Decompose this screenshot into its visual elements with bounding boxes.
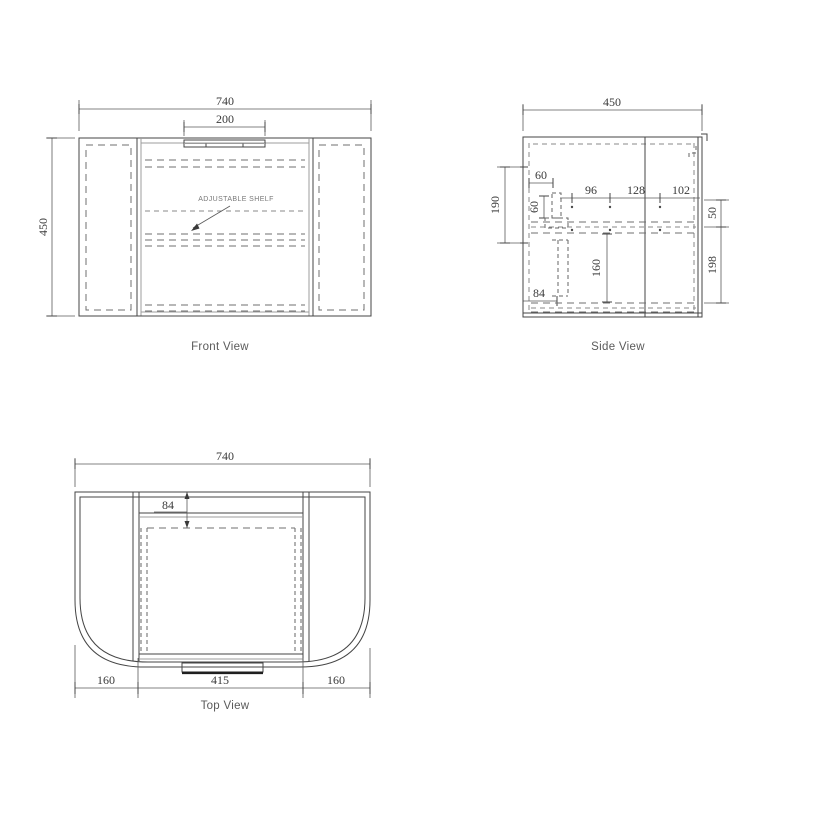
side-cabinet-outline xyxy=(520,134,707,317)
side-rail-size-value: 60 xyxy=(527,201,541,213)
top-dim-overall-width: 740 xyxy=(75,449,370,487)
side-dim-drawer-depth: 160 xyxy=(589,234,612,302)
top-right-wing-value: 160 xyxy=(327,673,345,687)
front-dim-overall-height: 450 xyxy=(36,138,75,316)
side-hole-b-value: 128 xyxy=(627,183,645,197)
side-rail-offset-value: 60 xyxy=(535,168,547,182)
side-view: 450 190 60 xyxy=(488,95,729,353)
cabinet-drawing-canvas: 740 200 450 xyxy=(0,0,819,821)
side-view-caption: Side View xyxy=(591,341,645,353)
front-handle xyxy=(184,140,265,147)
top-cabinet-outline xyxy=(75,492,370,667)
front-cabinet-outline xyxy=(79,138,371,316)
top-view: 740 xyxy=(75,449,370,712)
front-adjustable-shelf-callout: ADJUSTABLE SHELF xyxy=(191,196,274,231)
front-view: 740 200 450 xyxy=(36,94,371,353)
side-depth-value: 450 xyxy=(603,95,621,109)
side-dim-rail-offset: 60 xyxy=(529,168,553,188)
side-base-inset-value: 84 xyxy=(533,286,545,300)
top-interior-dashed xyxy=(141,528,301,651)
top-tab-handle xyxy=(182,663,263,673)
side-dim-rail-size: 60 xyxy=(527,196,549,218)
side-bottom-dashed-lines xyxy=(531,303,696,312)
side-hole-a-value: 96 xyxy=(585,183,597,197)
adjustable-shelf-label: ADJUSTABLE SHELF xyxy=(198,196,274,203)
technical-drawing-page: 740 200 450 xyxy=(0,0,819,821)
side-hole-c-value: 102 xyxy=(672,183,690,197)
top-width-value: 740 xyxy=(216,449,234,463)
side-right-dimensions: 50 198 xyxy=(704,200,729,303)
top-front-band-value: 84 xyxy=(162,498,174,512)
front-view-caption: Front View xyxy=(191,341,249,353)
front-dim-handle-width: 200 xyxy=(184,112,265,136)
side-rail-span-value: 190 xyxy=(488,196,502,214)
front-height-value: 450 xyxy=(36,218,50,236)
side-upper-gap-value: 50 xyxy=(705,207,719,219)
front-handle-value: 200 xyxy=(216,112,234,126)
front-width-value: 740 xyxy=(216,94,234,108)
side-dim-overall-depth: 450 xyxy=(523,95,702,131)
side-hole-dimensions: 96 128 102 xyxy=(560,183,700,231)
side-dim-base-inset: 84 xyxy=(523,286,557,306)
top-left-wing-value: 160 xyxy=(97,673,115,687)
side-dim-rail-span: 190 xyxy=(488,167,520,243)
side-lower-height-value: 198 xyxy=(705,256,719,274)
top-view-caption: Top View xyxy=(201,700,250,712)
side-drawer-depth-value: 160 xyxy=(589,259,603,277)
side-top-right-step xyxy=(689,146,696,160)
side-drawer-runner xyxy=(552,240,568,296)
front-shelf-dashed-lines xyxy=(145,160,305,311)
top-center-value: 415 xyxy=(211,673,229,687)
